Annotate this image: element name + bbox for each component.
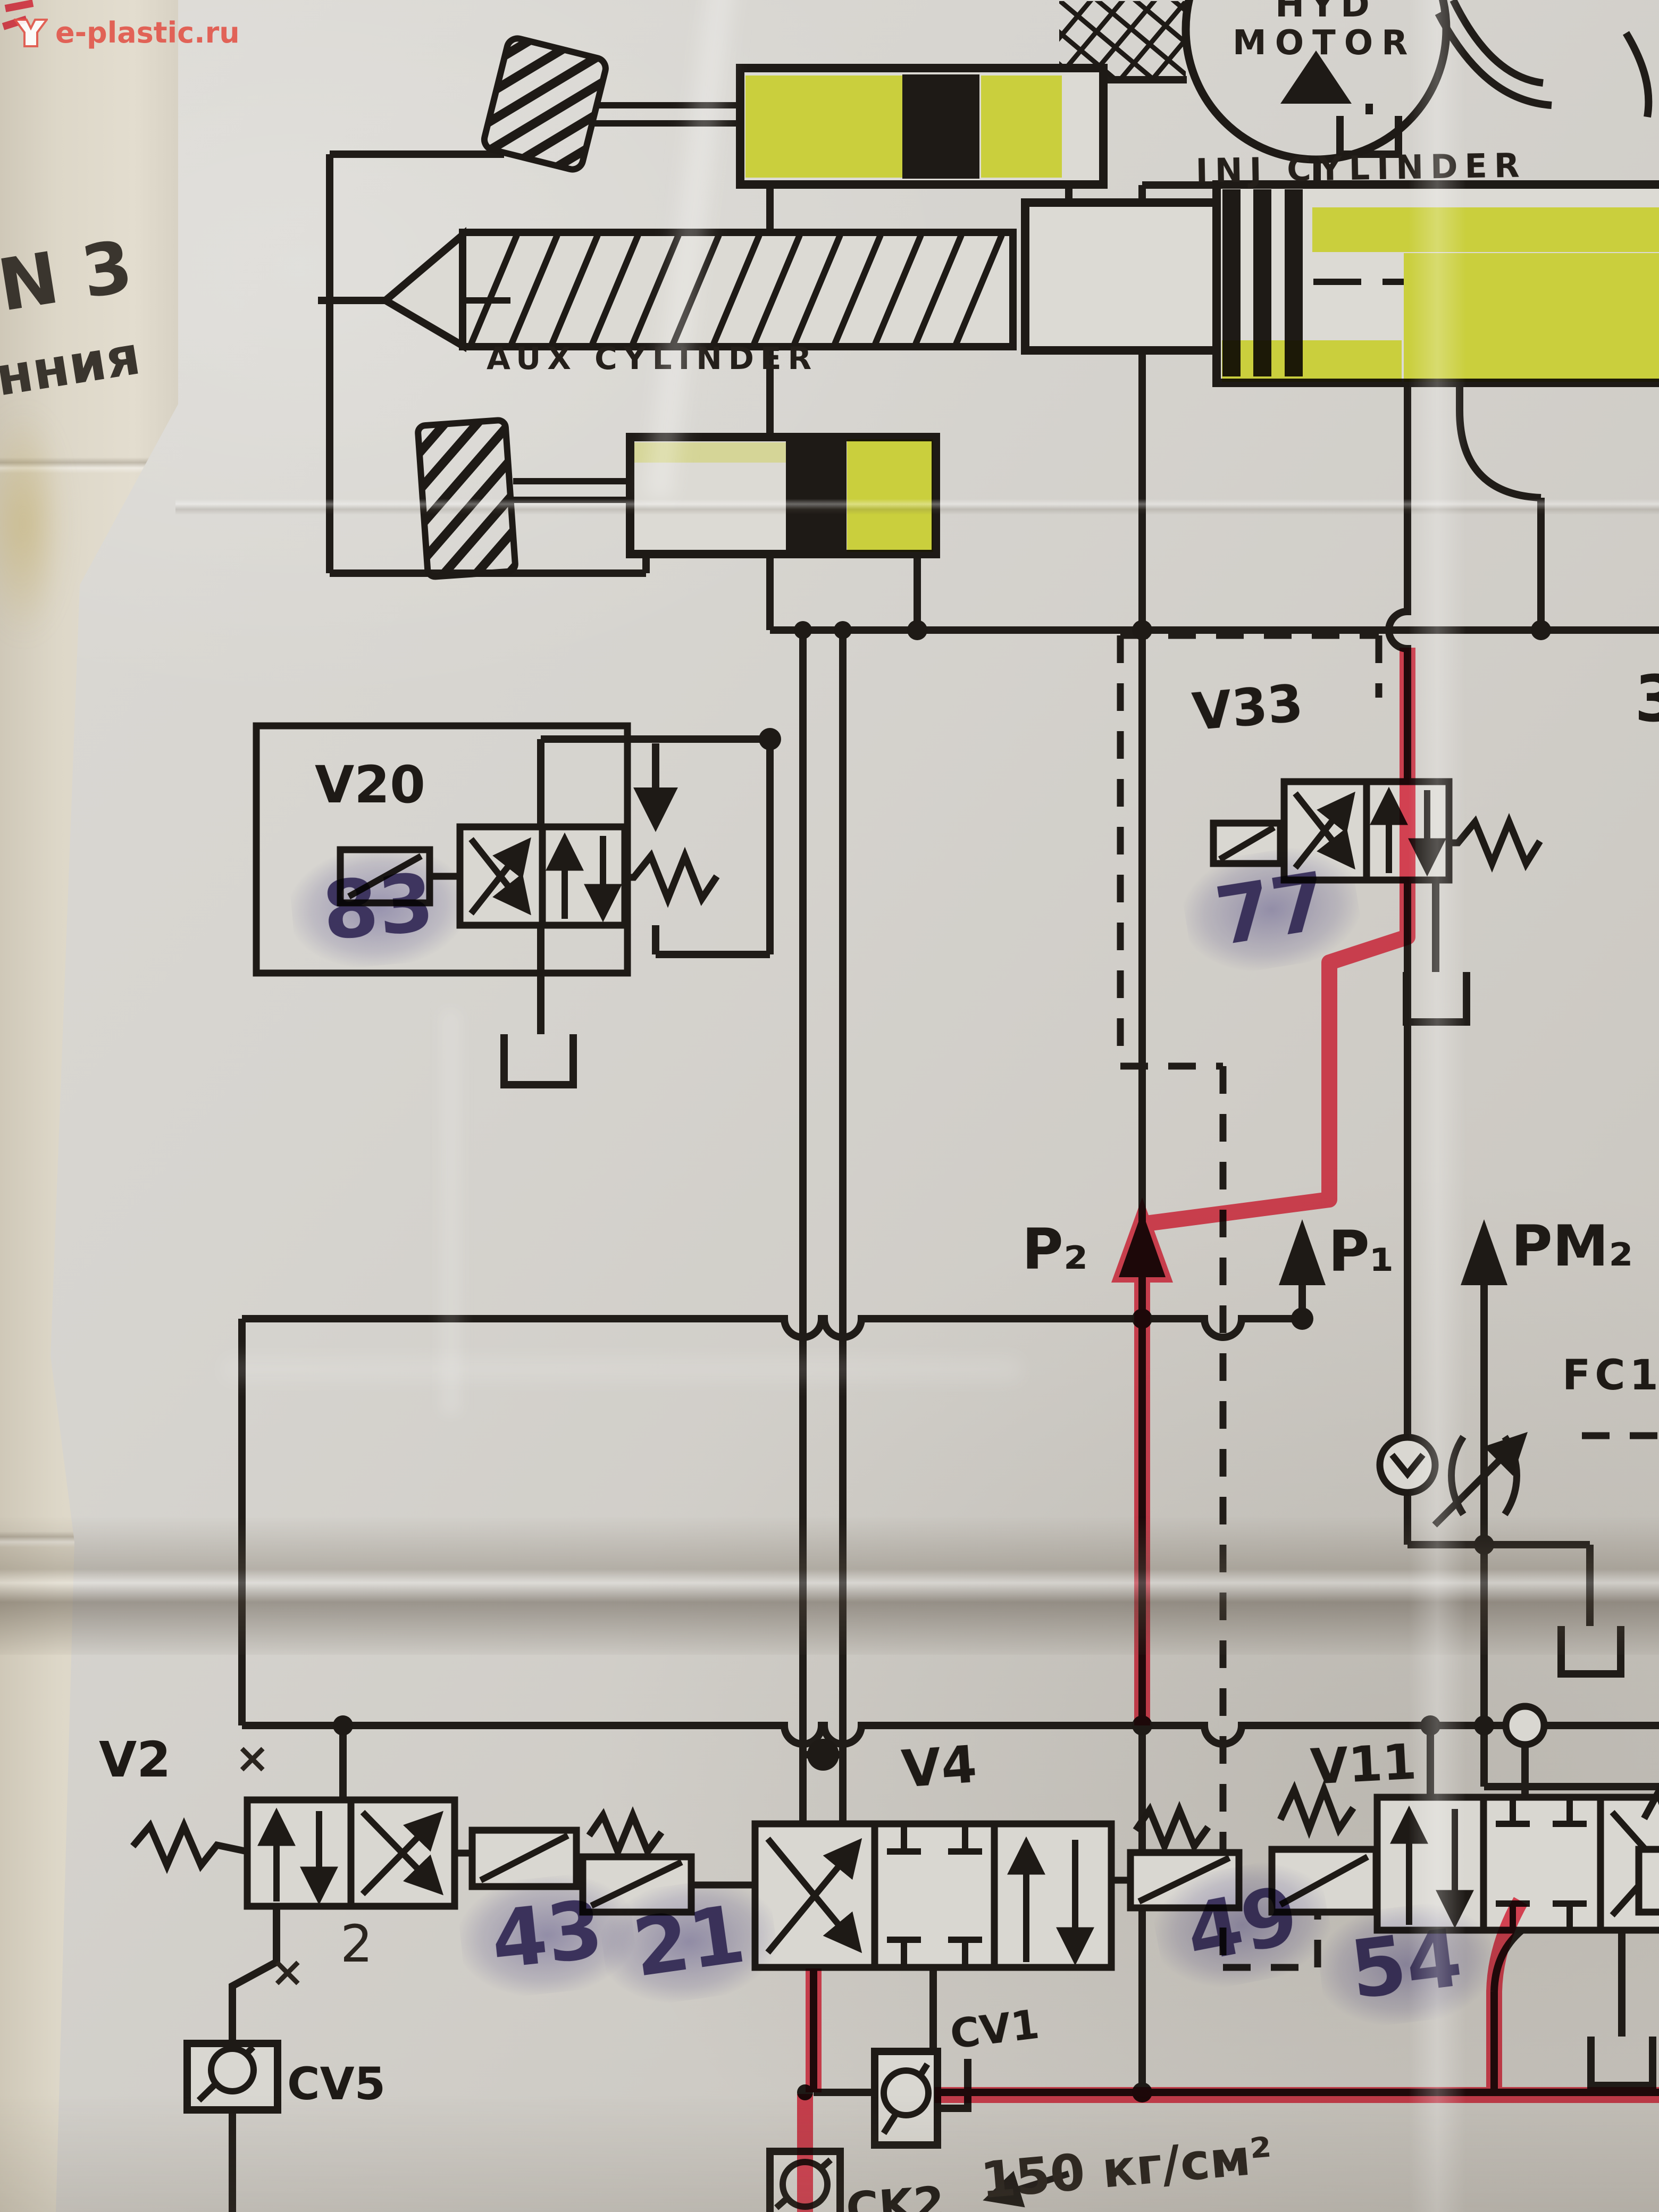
inj-cylinder-mount [1025,203,1217,350]
port-label-p2: P₂ [1022,1217,1088,1282]
watermark-text: e-plastic.ru [55,16,240,49]
watermark-logo-icon [14,18,48,48]
check-valve-cv5 [187,2043,278,2110]
check-valve-cv1 [875,2051,937,2145]
label-cv5: CV5 [287,2058,386,2110]
ball-check-icon [1380,1437,1435,1493]
hyd-motor-label-line1: HYD [1275,0,1375,25]
handwritten-digit-2: 2 [340,1914,373,1974]
aux-screw [386,232,1013,347]
x-mark-lower: × [270,1948,305,1996]
p1-arrow-icon [1279,1219,1326,1285]
v4-right-spring-icon [1136,1810,1208,1846]
valve-label-v4: V4 [900,1735,979,1799]
v11-left-spring-icon [1280,1790,1353,1829]
aux-bottom-cylinder-piston [786,438,847,553]
port-label-p1: P₁ [1328,1219,1394,1284]
v20-spring-icon [625,856,717,899]
hyd-motor-label-line2: MOTOR [1233,23,1416,63]
pm2-arrow-icon [1461,1219,1507,1285]
edge-clipped-digit: 3 [1635,663,1659,736]
watermark: e-plastic.ru [14,16,240,49]
label-ck2: CK2 [844,2176,946,2212]
valve-label-v11: V11 [1309,1733,1418,1796]
port-label-pm2: PM₂ [1511,1213,1633,1279]
x-mark-upper: × [235,1735,270,1782]
v33-spring-icon [1449,822,1540,864]
valve-label-v20: V20 [315,755,425,815]
stamp-54: 54 [1313,1896,1499,2032]
photographed-hydraulic-schematic: N 3 нния [0,0,1659,2212]
stamp-21: 21 [596,1872,783,2011]
aux-top-cylinder-piston [902,74,979,179]
aux-cylinder-label: AUX CYLINDER [487,340,818,376]
v2-spring-icon [133,1826,247,1865]
label-fc1: FC1 [1562,1352,1659,1400]
schematic-drawing [0,0,1659,2212]
junction-ring [1506,1706,1544,1745]
valve-label-v33: V33 [1190,673,1305,742]
inj-cylinder-label: INJ CYLINDER [1195,146,1527,190]
stamp-83: 83 [287,842,470,973]
valve-label-v2: V2 [99,1731,171,1788]
v4-left-spring-icon [589,1815,661,1851]
